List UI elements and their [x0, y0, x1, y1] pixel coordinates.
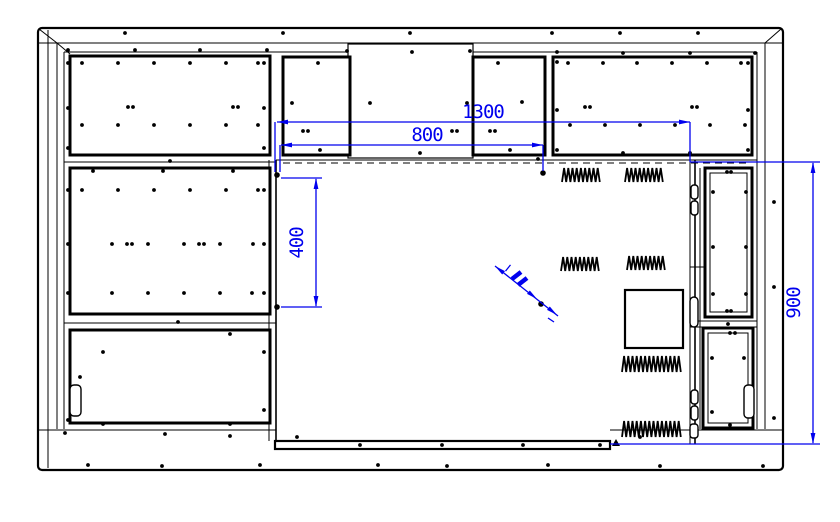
screw-dot — [772, 416, 776, 420]
screw-dot — [550, 31, 554, 35]
screw-dot — [566, 61, 570, 65]
screw-dot — [729, 309, 733, 313]
panel-bottom-left — [70, 330, 270, 423]
screw-dot — [262, 291, 266, 295]
screw-dot — [670, 61, 674, 65]
leader-tick — [506, 265, 511, 271]
screw-dot — [66, 418, 70, 422]
screw-dot — [445, 464, 449, 468]
screw-dot — [290, 101, 294, 105]
leader-annotation — [495, 265, 558, 322]
screw-dot — [673, 123, 677, 127]
screw-dot — [408, 31, 412, 35]
screw-dot — [708, 123, 712, 127]
screw-dot — [163, 432, 167, 436]
screw-dot — [638, 123, 642, 127]
screw-dot — [555, 50, 559, 54]
screw-dot — [555, 60, 559, 64]
screw-dot — [521, 443, 525, 447]
screw-dot — [688, 51, 692, 55]
clip-6 — [690, 424, 698, 438]
screw-dot — [262, 350, 266, 354]
screw-dot — [256, 188, 260, 192]
screw-dot — [78, 375, 82, 379]
screw-dot — [345, 49, 349, 53]
screw-dot — [493, 129, 497, 133]
screw-dot — [318, 148, 322, 152]
dim-900-arrow-top — [811, 162, 816, 173]
screw-dot — [739, 61, 743, 65]
screw-dot — [110, 242, 114, 246]
screw-dot — [710, 356, 714, 360]
screw-dot — [410, 50, 414, 54]
ref-dot-3 — [540, 170, 546, 176]
screw-dot — [262, 106, 266, 110]
screw-dot — [468, 49, 472, 53]
screw-dot — [696, 31, 700, 35]
screw-dot — [601, 61, 605, 65]
screw-dot — [695, 105, 699, 109]
clip-5 — [691, 406, 698, 420]
screw-dot — [301, 129, 305, 133]
screw-dot — [228, 332, 232, 336]
ref-dot-1 — [274, 172, 280, 178]
screw-dot — [742, 356, 746, 360]
drawing-canvas: 1300 800 400 900 — [0, 0, 840, 522]
screw-dot — [130, 242, 134, 246]
reference-points — [274, 170, 546, 310]
screw-dot — [188, 188, 192, 192]
screw-dot — [568, 123, 572, 127]
screw-dot — [218, 291, 222, 295]
screw-dot — [116, 123, 120, 127]
screw-dot — [86, 463, 90, 467]
dim-400-label: 400 — [286, 227, 308, 259]
screw-dot — [316, 61, 320, 65]
clip-4 — [691, 390, 698, 404]
screw-dot — [728, 423, 732, 427]
panel-right-lower-handle — [744, 385, 754, 418]
screw-dot — [638, 435, 642, 439]
screw-dot — [133, 48, 137, 52]
screw-dot — [746, 108, 750, 112]
screw-dot — [202, 242, 206, 246]
dim-900-arrow-bottom — [811, 433, 816, 444]
screw-dot — [101, 422, 105, 426]
screw-dot — [306, 129, 310, 133]
screw-dot — [146, 242, 150, 246]
dim-800-label: 800 — [411, 124, 443, 146]
vent-grille — [622, 356, 681, 372]
screw-dot — [182, 242, 186, 246]
screw-dot — [710, 410, 714, 414]
screw-dot — [368, 101, 372, 105]
screw-dot — [146, 291, 150, 295]
screw-dot — [746, 61, 750, 65]
screw-dot — [496, 61, 500, 65]
screw-dot — [116, 188, 120, 192]
panel-mid-left — [70, 168, 270, 314]
screw-dot — [256, 123, 260, 127]
screw-dot — [658, 464, 662, 468]
screw-dot — [621, 51, 625, 55]
screw-dot — [536, 157, 540, 161]
screw-dot — [188, 61, 192, 65]
screw-dot — [250, 291, 254, 295]
screw-dot — [418, 151, 422, 155]
screw-dot — [603, 123, 607, 127]
screw-dot — [281, 31, 285, 35]
screw-dot — [546, 463, 550, 467]
screw-dot — [555, 148, 559, 152]
screw-dot — [218, 242, 222, 246]
screw-dot — [711, 292, 715, 296]
center-bay — [269, 160, 757, 449]
screw-dot — [508, 148, 512, 152]
clip-1 — [691, 185, 698, 199]
screw-dot — [635, 61, 639, 65]
screw-dot — [168, 159, 172, 163]
screw-dot — [265, 48, 269, 52]
screw-dot — [743, 123, 747, 127]
screw-dot — [224, 188, 228, 192]
screw-dot — [744, 292, 748, 296]
screw-dot — [66, 291, 70, 295]
panel-top-left — [70, 56, 270, 155]
screw-dot — [705, 61, 709, 65]
vent-grille — [561, 257, 599, 271]
screw-dot — [66, 188, 70, 192]
screw-dot — [228, 422, 232, 426]
screw-dot — [711, 245, 715, 249]
screw-dot — [224, 61, 228, 65]
screw-dot — [376, 463, 380, 467]
screw-dot — [66, 146, 70, 150]
screw-dot — [450, 129, 454, 133]
screw-dot — [358, 443, 362, 447]
screw-dot — [161, 169, 165, 173]
screw-dot — [262, 408, 266, 412]
screw-dot — [160, 464, 164, 468]
screw-dot — [711, 190, 715, 194]
screw-dot — [224, 123, 228, 127]
screw-dot — [618, 31, 622, 35]
screw-dot — [583, 105, 587, 109]
screw-dot — [295, 435, 299, 439]
component-box — [625, 290, 683, 348]
screw-dot — [726, 322, 730, 326]
screw-dot — [733, 331, 737, 335]
screw-dot — [126, 105, 130, 109]
screw-dot — [256, 61, 260, 65]
screw-dot — [116, 61, 120, 65]
leader-text-blob-1 — [512, 272, 521, 279]
screw-dot — [231, 169, 235, 173]
screw-dot — [251, 242, 255, 246]
flange-end-mark — [612, 439, 620, 446]
screw-dot — [80, 188, 84, 192]
screw-dot — [588, 105, 592, 109]
screw-dot — [761, 464, 765, 468]
screw-dot — [488, 129, 492, 133]
frame-bevel-top-right — [765, 29, 781, 43]
screw-dot — [101, 350, 105, 354]
screw-dot — [236, 105, 240, 109]
clip-3 — [690, 297, 698, 327]
vent-grille — [627, 256, 665, 270]
panel-top-right — [553, 57, 752, 155]
screw-dot — [728, 331, 732, 335]
screw-dot — [66, 61, 70, 65]
screw-dot — [152, 61, 156, 65]
screw-dot — [262, 242, 266, 246]
screw-dot — [520, 100, 524, 104]
dim-900-label: 900 — [783, 287, 805, 319]
panel-top-center-left — [283, 57, 350, 155]
screw-dot — [262, 146, 266, 150]
screw-dot — [152, 188, 156, 192]
screw-dot — [188, 123, 192, 127]
screw-dot — [110, 291, 114, 295]
screw-dot — [125, 242, 129, 246]
screw-dot — [198, 48, 202, 52]
screw-dot — [621, 151, 625, 155]
screw-dot — [598, 443, 602, 447]
screw-dot — [91, 169, 95, 173]
screw-dot — [744, 190, 748, 194]
vent-grille — [622, 421, 681, 437]
screw-dot — [440, 443, 444, 447]
screw-dot — [152, 123, 156, 127]
screw-dot — [455, 129, 459, 133]
screw-dot — [729, 170, 733, 174]
screw-dot — [555, 108, 559, 112]
screw-dot — [123, 31, 127, 35]
screw-dot — [258, 463, 262, 467]
screw-dot — [228, 434, 232, 438]
screw-dot — [131, 105, 135, 109]
dim-400-arrow-top — [314, 178, 319, 189]
screw-dot — [63, 431, 67, 435]
screw-dot — [66, 242, 70, 246]
screw-dot — [690, 105, 694, 109]
screw-dot — [182, 291, 186, 295]
screw-dot — [197, 242, 201, 246]
leader-end-tick — [548, 318, 554, 322]
screw-dot — [80, 123, 84, 127]
screw-dot — [753, 51, 757, 55]
screw-dot — [66, 106, 70, 110]
vent-grilles — [561, 168, 681, 437]
leader-text-blob-2 — [518, 278, 527, 285]
screw-dot — [176, 320, 180, 324]
screw-dot — [725, 170, 729, 174]
screw-dot — [744, 245, 748, 249]
screw-dot — [746, 148, 750, 152]
clip-2 — [691, 201, 698, 215]
vent-grille — [625, 168, 663, 182]
vent-grille — [562, 168, 600, 182]
screw-dot — [66, 48, 70, 52]
panel-bottom-left-handle — [70, 385, 81, 416]
screw-dot — [231, 105, 235, 109]
engineering-drawing: 1300 800 400 900 — [0, 0, 840, 522]
screw-dot — [262, 188, 266, 192]
screw-dot — [262, 61, 266, 65]
dim-400-arrow-bottom — [314, 296, 319, 307]
dim-height-left: 400 — [281, 178, 322, 307]
screw-dot — [772, 200, 776, 204]
ref-dot-2 — [274, 304, 280, 310]
dim-1300-label: 1300 — [462, 101, 504, 123]
screw-dot — [772, 285, 776, 289]
screw-dot — [725, 309, 729, 313]
screw-dot — [80, 61, 84, 65]
